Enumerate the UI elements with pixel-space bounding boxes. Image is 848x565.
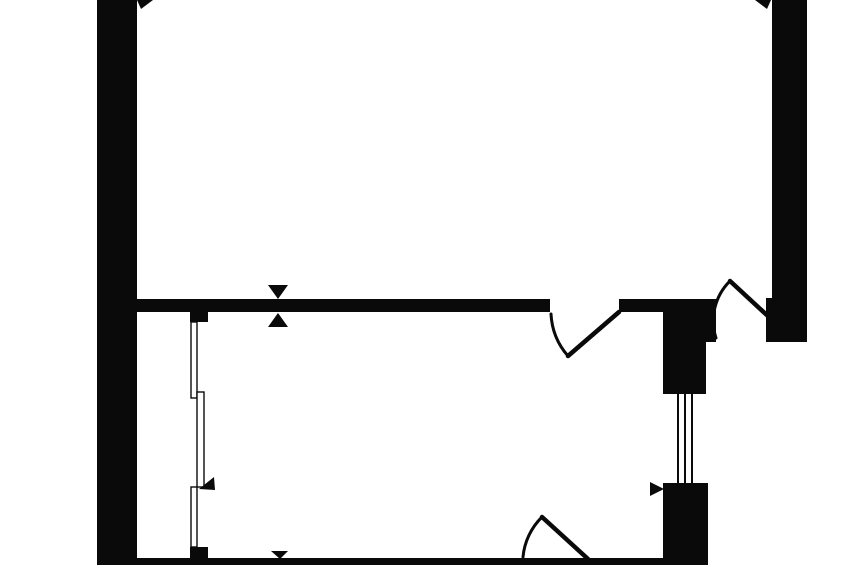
vent-shaft-line-3 (691, 394, 693, 483)
window-jamb-top (190, 312, 208, 322)
partition-wall-right (619, 299, 663, 312)
window-jamb-bottom (190, 547, 208, 559)
right-outer-wall (772, 0, 807, 342)
floor-plan-screenshot (0, 0, 848, 565)
floor-plan-canvas (0, 0, 848, 565)
bottom-outer-wall (97, 558, 708, 565)
vent-shaft-line-1 (677, 394, 679, 483)
duct-block-top (663, 299, 716, 342)
balcony-glazing-upper (191, 322, 197, 398)
balcony-glazing-lower (191, 487, 197, 547)
partition-wall-left (136, 299, 550, 312)
left-outer-wall (97, 0, 137, 565)
balcony-glazing-middle (197, 392, 204, 487)
duct-column (663, 342, 706, 394)
duct-block-bottom (663, 483, 708, 565)
vent-shaft-line-2 (684, 394, 686, 483)
